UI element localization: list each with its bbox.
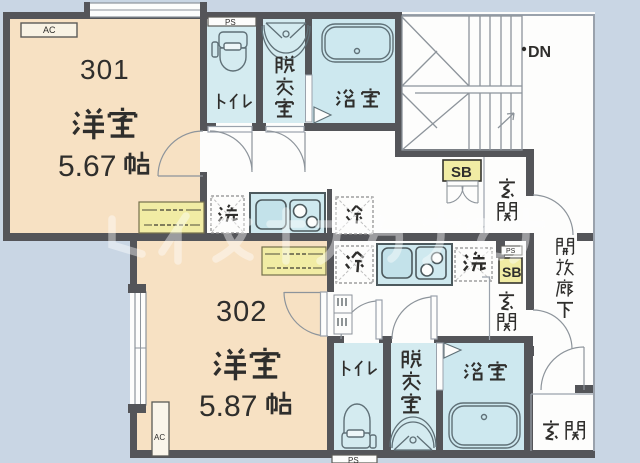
svg-text:5.67: 5.67 — [58, 150, 116, 183]
svg-text:DN: DN — [528, 44, 551, 61]
svg-text:SB: SB — [451, 164, 472, 181]
svg-text:PS: PS — [225, 18, 236, 27]
svg-text:PS: PS — [506, 248, 516, 255]
svg-text:301: 301 — [80, 54, 130, 85]
svg-text:SB: SB — [502, 264, 521, 280]
svg-text:AC: AC — [43, 25, 56, 35]
svg-text:AC: AC — [154, 433, 165, 442]
svg-text:PS: PS — [348, 456, 359, 463]
svg-text:5.87: 5.87 — [199, 390, 257, 423]
svg-text:302: 302 — [216, 296, 267, 328]
